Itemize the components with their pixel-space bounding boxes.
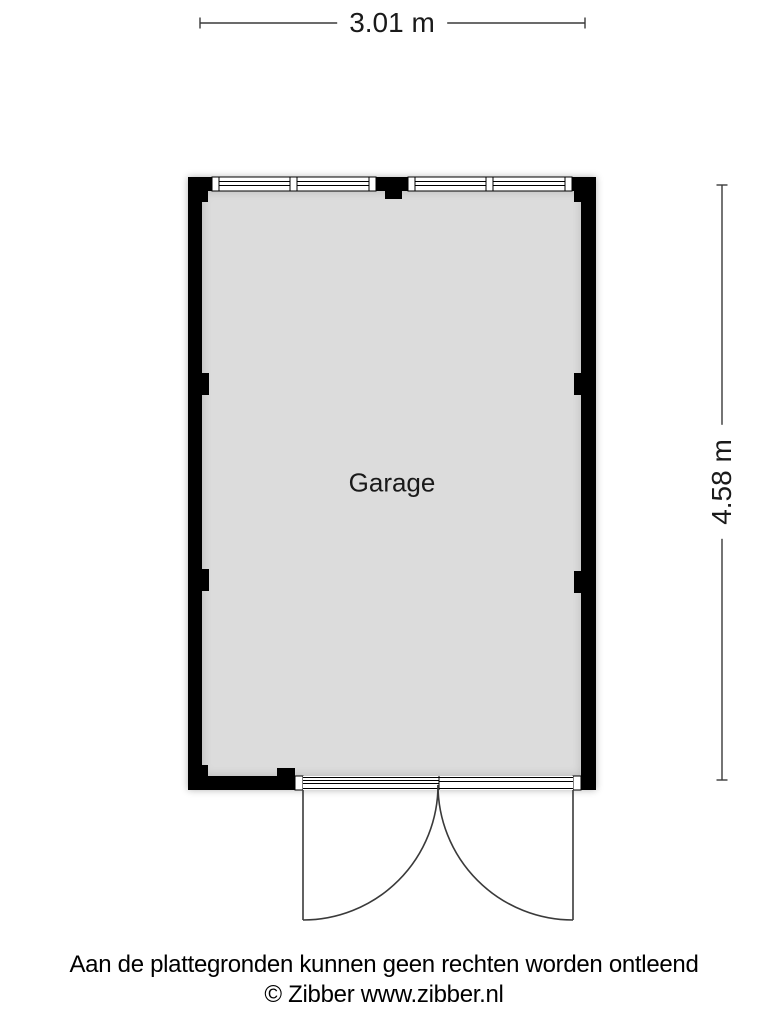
- floorplan-page: 3.01 m 4.58 m Garage Aan de plattegronde…: [0, 0, 768, 1024]
- floor-plan-drawing: [0, 0, 768, 1024]
- room-name-label: Garage: [349, 468, 436, 499]
- copyright-text: © Zibber www.zibber.nl: [0, 980, 768, 1010]
- height-dimension-label: 4.58 m: [704, 425, 740, 539]
- width-dimension-label: 3.01 m: [337, 5, 447, 41]
- garage-door: [295, 776, 581, 920]
- disclaimer-text: Aan de plattegronden kunnen geen rechten…: [0, 950, 768, 980]
- dimension-lines: [200, 18, 728, 781]
- footer: Aan de plattegronden kunnen geen rechten…: [0, 950, 768, 1010]
